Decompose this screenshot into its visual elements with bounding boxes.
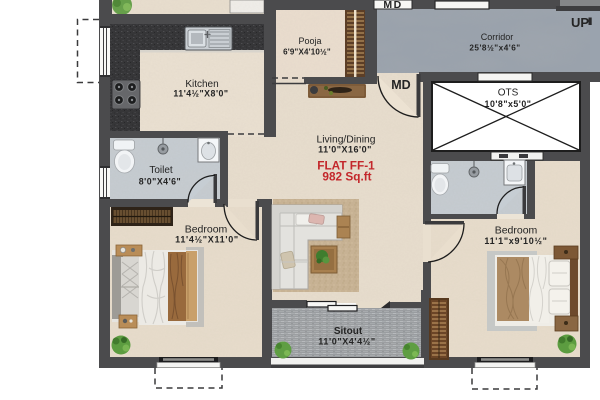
svg-text:OTS: OTS: [498, 88, 519, 99]
svg-text:Corridor: Corridor: [481, 32, 514, 42]
svg-text:MD: MD: [391, 78, 410, 92]
svg-text:11'4½"X11'0": 11'4½"X11'0": [175, 235, 239, 245]
svg-text:11'4½"X8'0": 11'4½"X8'0": [173, 89, 228, 99]
svg-text:MD: MD: [383, 0, 402, 11]
svg-text:Bedroom: Bedroom: [495, 225, 538, 237]
svg-text:UP: UP: [571, 15, 589, 30]
svg-text:Toilet: Toilet: [149, 165, 173, 176]
svg-text:25'8½"x4'6": 25'8½"x4'6": [469, 44, 520, 53]
svg-text:10'8"x5'0": 10'8"x5'0": [485, 99, 532, 109]
svg-text:8'0"X4'6": 8'0"X4'6": [139, 177, 181, 187]
svg-text:11'0"X4'4½": 11'0"X4'4½": [318, 337, 375, 347]
svg-text:Pooja: Pooja: [298, 36, 321, 46]
svg-text:11'1"x9'10½": 11'1"x9'10½": [484, 236, 547, 246]
svg-text:11'0"X16'0": 11'0"X16'0": [318, 145, 372, 155]
svg-text:982 Sq.ft: 982 Sq.ft: [322, 170, 371, 184]
svg-text:6'9"X4'10½": 6'9"X4'10½": [283, 48, 331, 57]
svg-text:Sitout: Sitout: [334, 326, 363, 337]
